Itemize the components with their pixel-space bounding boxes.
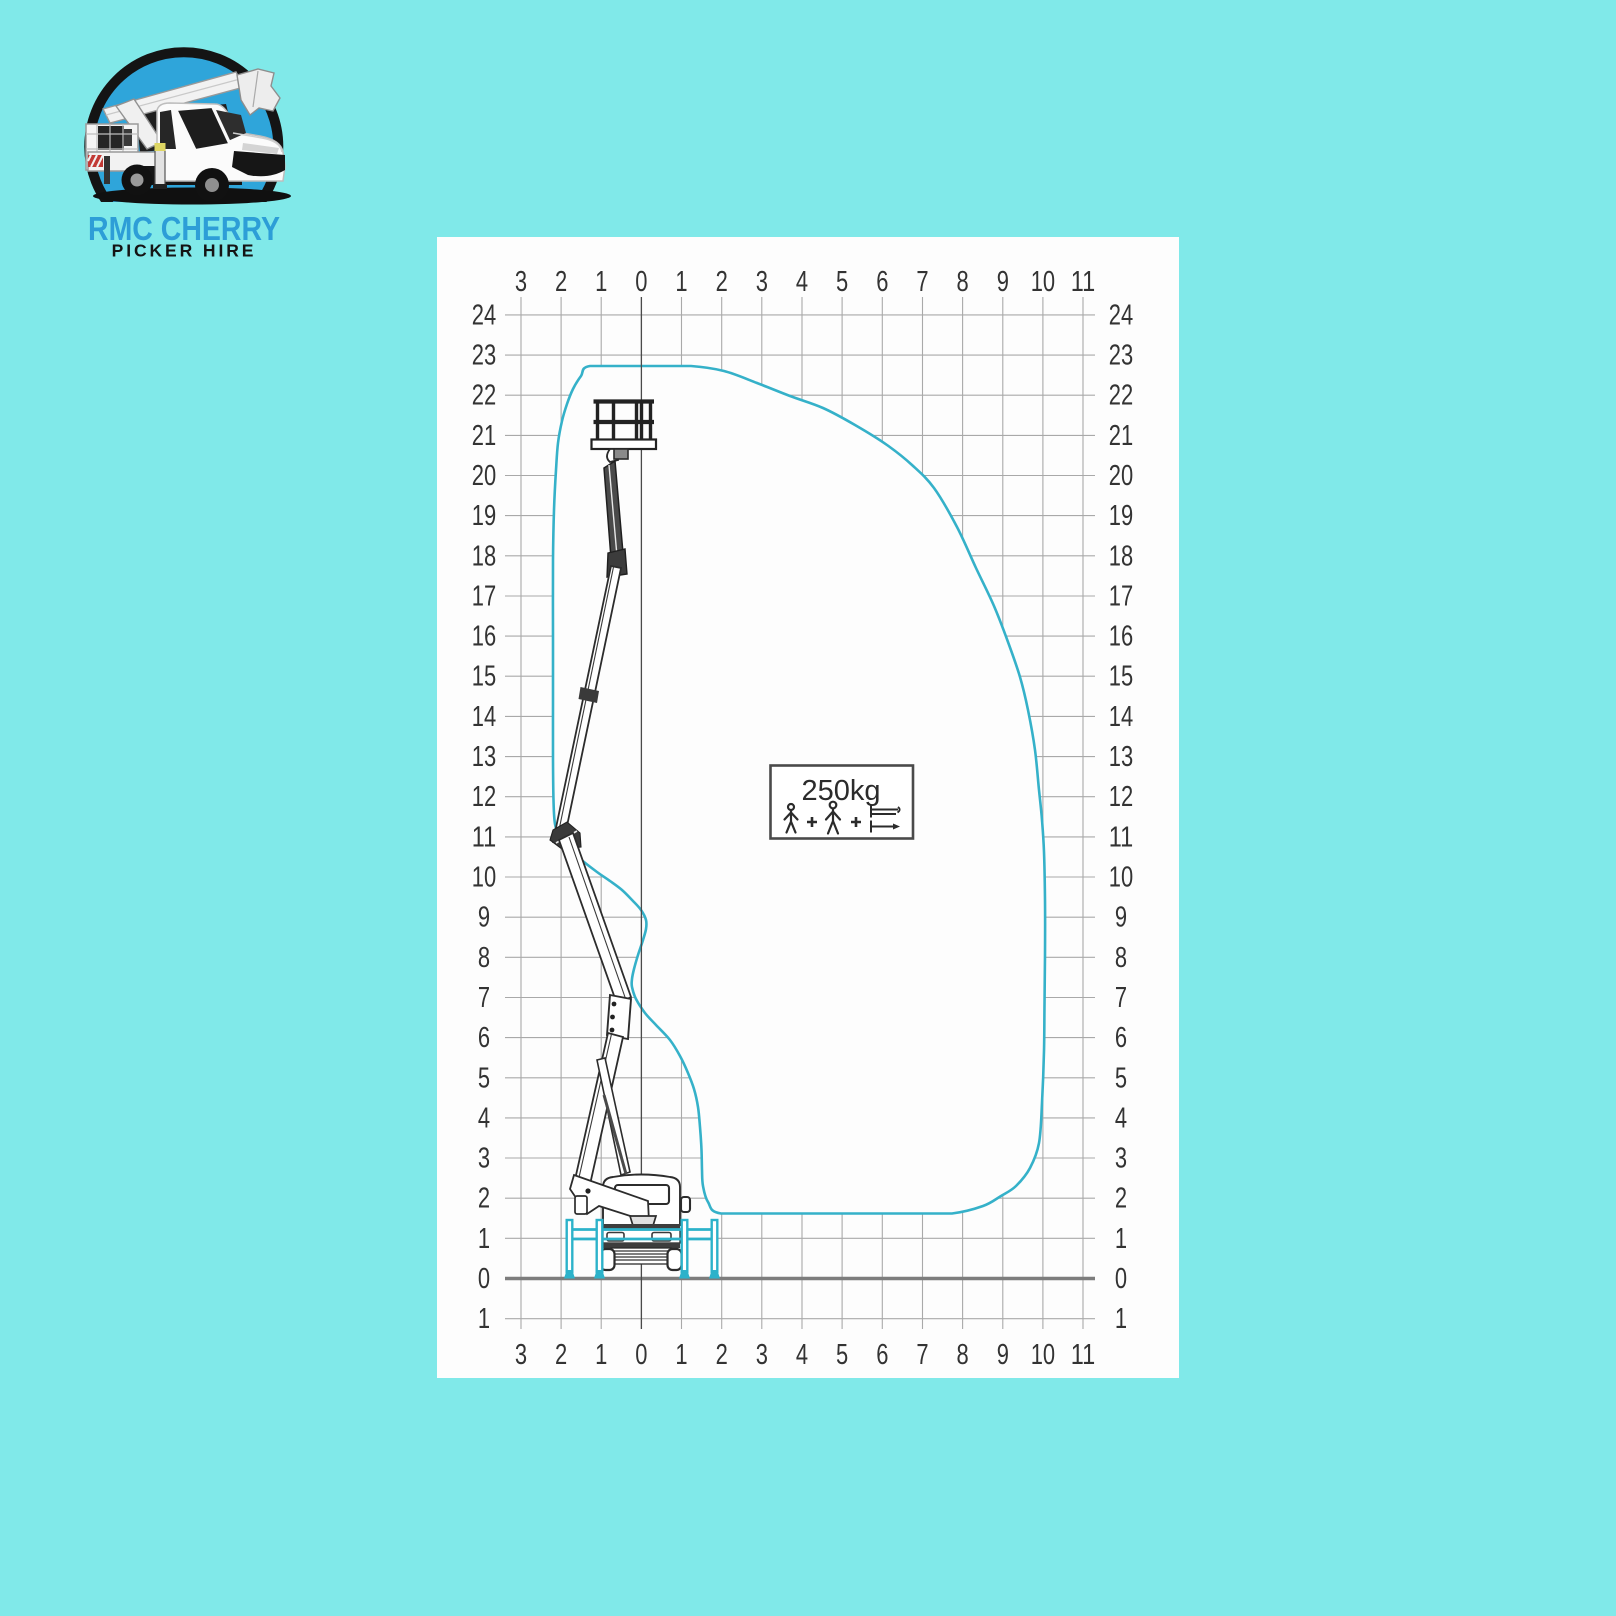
svg-text:4: 4	[1115, 1102, 1127, 1134]
svg-text:1: 1	[478, 1303, 490, 1335]
svg-text:23: 23	[1109, 340, 1133, 372]
svg-text:15: 15	[472, 661, 496, 693]
svg-text:24: 24	[472, 299, 496, 331]
svg-text:9: 9	[1115, 902, 1127, 934]
svg-text:5: 5	[836, 1339, 848, 1371]
svg-text:10: 10	[1031, 1339, 1055, 1371]
svg-text:18: 18	[472, 540, 496, 572]
svg-text:2: 2	[716, 266, 728, 298]
svg-text:20: 20	[1109, 460, 1133, 492]
svg-text:20: 20	[472, 460, 496, 492]
svg-text:4: 4	[796, 266, 808, 298]
svg-text:18: 18	[1109, 540, 1133, 572]
svg-text:3: 3	[515, 1339, 527, 1371]
svg-text:19: 19	[472, 500, 496, 532]
svg-text:8: 8	[957, 266, 969, 298]
svg-text:6: 6	[478, 1022, 490, 1054]
svg-text:22: 22	[472, 380, 496, 412]
svg-text:6: 6	[1115, 1022, 1127, 1054]
svg-text:11: 11	[1071, 266, 1095, 298]
svg-text:7: 7	[916, 1339, 928, 1371]
svg-text:10: 10	[472, 862, 496, 894]
svg-text:3: 3	[756, 266, 768, 298]
svg-text:2: 2	[716, 1339, 728, 1371]
svg-text:21: 21	[472, 420, 496, 452]
svg-text:19: 19	[1109, 500, 1133, 532]
svg-text:8: 8	[1115, 942, 1127, 974]
svg-text:1: 1	[1115, 1303, 1127, 1335]
svg-text:5: 5	[836, 266, 848, 298]
svg-text:1: 1	[595, 1339, 607, 1371]
svg-text:1: 1	[675, 266, 687, 298]
svg-text:7: 7	[478, 982, 490, 1014]
svg-text:2: 2	[478, 1183, 490, 1215]
svg-text:0: 0	[478, 1263, 490, 1295]
svg-text:3: 3	[1115, 1143, 1127, 1175]
svg-text:16: 16	[472, 621, 496, 653]
svg-text:11: 11	[1071, 1339, 1095, 1371]
svg-text:8: 8	[478, 942, 490, 974]
svg-text:1: 1	[675, 1339, 687, 1371]
svg-text:7: 7	[1115, 982, 1127, 1014]
svg-text:3: 3	[478, 1143, 490, 1175]
svg-text:17: 17	[1109, 581, 1133, 613]
svg-text:7: 7	[916, 266, 928, 298]
svg-text:2: 2	[555, 1339, 567, 1371]
svg-text:9: 9	[997, 1339, 1009, 1371]
svg-text:14: 14	[1109, 701, 1133, 733]
svg-text:3: 3	[515, 266, 527, 298]
svg-text:13: 13	[472, 741, 496, 773]
svg-text:2: 2	[555, 266, 567, 298]
svg-text:21: 21	[1109, 420, 1133, 452]
svg-text:250kg: 250kg	[801, 775, 880, 807]
svg-text:9: 9	[478, 902, 490, 934]
svg-text:3: 3	[756, 1339, 768, 1371]
svg-text:5: 5	[478, 1062, 490, 1094]
svg-text:1: 1	[1115, 1223, 1127, 1255]
svg-text:6: 6	[876, 266, 888, 298]
svg-text:4: 4	[478, 1102, 490, 1134]
svg-text:17: 17	[472, 581, 496, 613]
svg-text:13: 13	[1109, 741, 1133, 773]
svg-text:1: 1	[478, 1223, 490, 1255]
svg-text:11: 11	[472, 821, 496, 853]
svg-text:14: 14	[472, 701, 496, 733]
svg-text:9: 9	[997, 266, 1009, 298]
svg-text:1: 1	[595, 266, 607, 298]
svg-text:10: 10	[1031, 266, 1055, 298]
svg-text:16: 16	[1109, 621, 1133, 653]
svg-text:10: 10	[1109, 862, 1133, 894]
svg-text:2: 2	[1115, 1183, 1127, 1215]
svg-text:23: 23	[472, 340, 496, 372]
svg-text:22: 22	[1109, 380, 1133, 412]
svg-text:0: 0	[1115, 1263, 1127, 1295]
svg-text:24: 24	[1109, 299, 1133, 331]
svg-text:6: 6	[876, 1339, 888, 1371]
svg-text:0: 0	[635, 1339, 647, 1371]
svg-text:PICKER HIRE: PICKER HIRE	[112, 241, 257, 261]
svg-text:0: 0	[635, 266, 647, 298]
svg-text:11: 11	[1109, 821, 1133, 853]
svg-text:15: 15	[1109, 661, 1133, 693]
svg-text:12: 12	[472, 781, 496, 813]
svg-text:8: 8	[957, 1339, 969, 1371]
svg-text:4: 4	[796, 1339, 808, 1371]
svg-text:5: 5	[1115, 1062, 1127, 1094]
svg-text:12: 12	[1109, 781, 1133, 813]
